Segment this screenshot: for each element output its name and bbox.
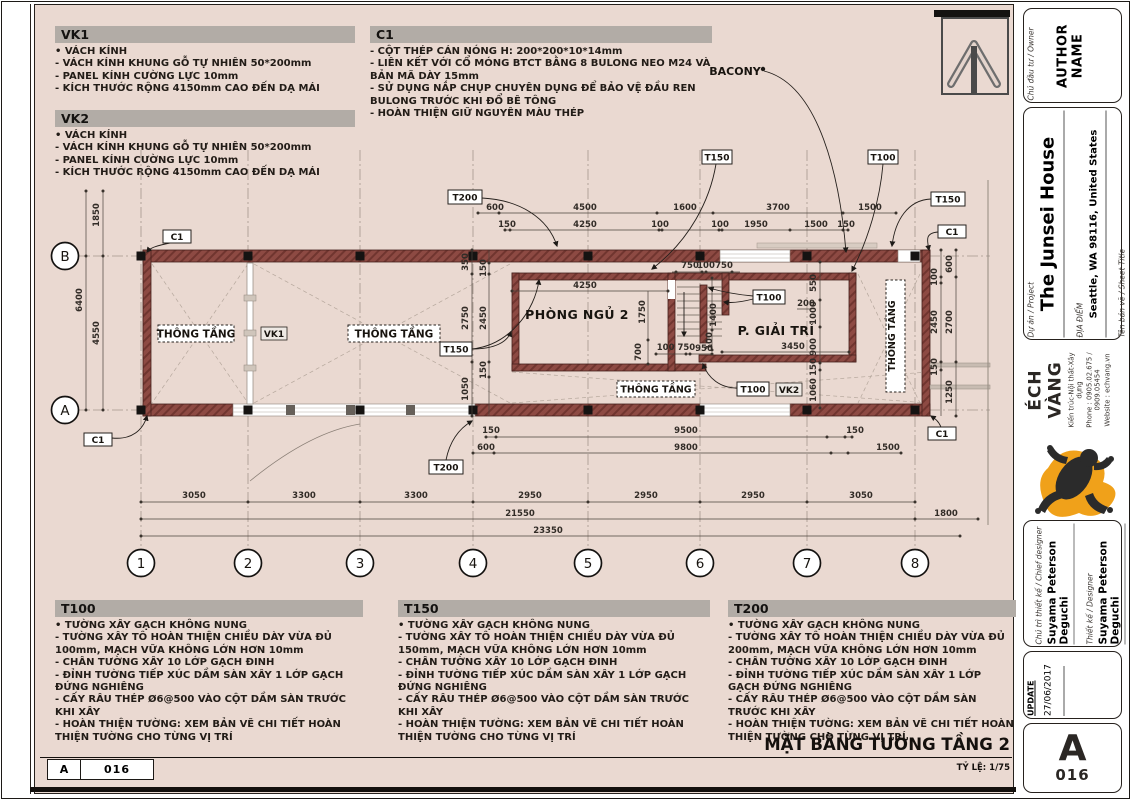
tag-vk1: VK1 bbox=[264, 330, 284, 340]
tag-vk2: VK2 bbox=[779, 386, 799, 396]
dim-label: 100 bbox=[705, 332, 715, 350]
dim-label: 6400 bbox=[75, 288, 85, 312]
room-label-bedroom2: PHÒNG NGỦ 2 bbox=[525, 306, 629, 322]
dim-label: 4250 bbox=[573, 281, 597, 291]
dim-label: 750 bbox=[715, 261, 733, 271]
dim-label: 21550 bbox=[505, 509, 535, 519]
dim-label: 3050 bbox=[182, 491, 206, 501]
sheet-rev-big: A bbox=[1059, 732, 1087, 766]
dim-label: 600 bbox=[477, 443, 495, 453]
dim-label: 3300 bbox=[292, 491, 316, 501]
tag-t150: T150 bbox=[444, 346, 469, 356]
dim-label: 1500 bbox=[858, 203, 882, 213]
dim-label: 2750 bbox=[461, 306, 471, 330]
frog-logo-icon bbox=[1030, 434, 1116, 518]
dim-label: 23350 bbox=[533, 526, 563, 536]
balcony-label: BACONY bbox=[709, 65, 762, 78]
note-t150: T150 • TƯỜNG XÂY GẠCH KHÔNG NUNG - TƯỜNG… bbox=[398, 600, 710, 744]
dim-label: 2450 bbox=[479, 306, 489, 330]
dim-label: 150 bbox=[846, 426, 864, 436]
bottom-black-bar bbox=[30, 787, 1016, 792]
tag-t150: T150 bbox=[936, 196, 961, 206]
dim-label: 100 bbox=[651, 220, 669, 230]
project-name: The Junsei House bbox=[1037, 110, 1058, 337]
footer-rule bbox=[40, 757, 1012, 758]
dim-label: 1000 bbox=[809, 301, 819, 325]
dim-label: 2950 bbox=[741, 491, 765, 501]
firm-block: ÉCH VÀNG Kiến trúc-Nội thất-Xây dựng Pho… bbox=[1023, 344, 1122, 436]
balcony-leader-dot bbox=[761, 67, 765, 71]
note-line: - TƯỜNG XÂY TÔ HOÀN THIỆN CHIỀU DÀY VỪA … bbox=[398, 632, 710, 657]
void-label: THÔNG TẦNG bbox=[157, 327, 236, 341]
note-t200: T200 • TƯỜNG XÂY GẠCH KHÔNG NUNG - TƯỜNG… bbox=[728, 600, 1016, 744]
dim-label: 150 bbox=[482, 426, 500, 436]
sheet-ref-rev: A bbox=[48, 760, 81, 779]
firm-subtitle: Kiến trúc-Nội thất-Xây dựng bbox=[1067, 346, 1083, 434]
note-t150-title: T150 bbox=[398, 600, 710, 617]
sheet-number-big: 016 bbox=[1055, 766, 1089, 784]
chief-designer-label: Chủ trì thiết kế / Chief designer bbox=[1034, 526, 1043, 644]
scale-label: TỶ LỆ: 1/75 bbox=[540, 763, 1010, 773]
note-line: - CHÂN TƯỜNG XÂY 10 LỚP GẠCH ĐINH bbox=[55, 657, 363, 669]
dim-label: 2450 bbox=[930, 310, 940, 334]
dim-label: 4250 bbox=[573, 220, 597, 230]
dim-label: 9800 bbox=[674, 443, 698, 453]
dim-label: 550 bbox=[809, 274, 819, 292]
owner-name: AUTHOR NAME bbox=[1055, 11, 1085, 100]
tag-t200: T200 bbox=[453, 194, 478, 204]
grid-label: 5 bbox=[584, 556, 593, 572]
dim-label: 150 bbox=[837, 220, 855, 230]
update-box: UPDATE 27/06/2017 bbox=[1023, 651, 1122, 719]
note-t100-title: T100 bbox=[55, 600, 363, 617]
dim-label: 100 750 bbox=[657, 343, 696, 353]
tag-t100: T100 bbox=[757, 294, 782, 304]
dim-label: 4550 bbox=[92, 321, 102, 345]
door-swing-arc bbox=[250, 424, 360, 481]
dim-label: 2950 bbox=[518, 491, 542, 501]
dim-label: 1500 bbox=[876, 443, 900, 453]
chief-designer-name: Suyama Peterson Deguchi bbox=[1046, 523, 1070, 644]
project-box: Dự án / Project The Junsei House ĐỊA ĐIỂ… bbox=[1023, 107, 1122, 340]
dim-label: 1850 bbox=[92, 203, 102, 227]
note-line: - CHÂN TƯỜNG XÂY 10 LỚP GẠCH ĐINH bbox=[398, 657, 710, 669]
tag-t100: T100 bbox=[871, 154, 896, 164]
dim-label: 9500 bbox=[674, 426, 698, 436]
dim-label: 1500 bbox=[804, 220, 828, 230]
dim-label: 3050 bbox=[849, 491, 873, 501]
location-value: Seattle, WA 98116, United States bbox=[1088, 110, 1099, 337]
owner-label: Chủ đầu tư / Owner bbox=[1026, 11, 1035, 100]
drawing-sheet: { "notes": { "vk1": {"title":"VK1","line… bbox=[0, 0, 1131, 800]
drawing-title: MẶT BẰNG TƯỜNG TẦNG 2 bbox=[540, 735, 1010, 754]
dim-label: 100 bbox=[697, 261, 715, 271]
update-date: 27/06/2017 bbox=[1043, 654, 1053, 716]
note-line: - ĐỈNH TƯỜNG TIẾP XÚC DẦM SÀN XÂY 1 LỚP … bbox=[55, 670, 363, 695]
void-label: THÔNG TẦNG bbox=[355, 327, 434, 341]
dim-label: 1400 bbox=[709, 303, 719, 327]
update-rule bbox=[1063, 666, 1064, 716]
designer-name: Suyama Peterson Deguchi bbox=[1097, 523, 1121, 644]
note-line: - CẤY RÂU THÉP Ø6@500 VÀO CỘT DẦM SÀN TR… bbox=[398, 694, 710, 719]
tag-c1: C1 bbox=[936, 430, 949, 440]
dim-label: 150 bbox=[479, 361, 489, 379]
note-line: - HOÀN THIỆN TƯỜNG: XEM BẢN VẼ CHI TIẾT … bbox=[55, 719, 363, 744]
dim-label: 2700 bbox=[945, 310, 955, 334]
dim-label: 150 bbox=[479, 259, 489, 277]
firm-phone: Phone : 0905.02.675 / 0909.05454 bbox=[1085, 346, 1101, 434]
note-line: • TƯỜNG XÂY GẠCH KHÔNG NUNG bbox=[728, 620, 1016, 632]
dim-label: 350 bbox=[461, 253, 471, 271]
room-label-entertainment: P. GIẢI TRÍ bbox=[738, 322, 815, 338]
dim-label: 100 bbox=[930, 268, 940, 286]
grid-label: 1 bbox=[137, 556, 146, 572]
note-line: - TƯỜNG XÂY TÔ HOÀN THIỆN CHIỀU DÀY VỪA … bbox=[728, 632, 1016, 657]
grid-label: 4 bbox=[469, 556, 478, 572]
note-line: - CẤY RÂU THÉP Ø6@500 VÀO CỘT DẦM SÀN TR… bbox=[55, 694, 363, 719]
sheet-ref-box: A 016 bbox=[47, 759, 154, 780]
tag-c1: C1 bbox=[92, 436, 105, 446]
sheet-ref-number: 016 bbox=[81, 760, 153, 779]
dim-label: 100 bbox=[711, 220, 729, 230]
dim-label: 150 bbox=[930, 358, 940, 376]
note-line: - CHÂN TƯỜNG XÂY 10 LỚP GẠCH ĐINH bbox=[728, 657, 1016, 669]
dim-label: 1750 bbox=[638, 300, 648, 324]
floor-plan: 600 4500 1600 3700 1500 150 4250 100 100… bbox=[30, 10, 1020, 600]
note-line: - ĐỈNH TƯỜNG TIẾP XÚC DẦM SÀN XÂY 1 LỚP … bbox=[728, 670, 1016, 695]
void-label: THÔNG TẦNG bbox=[620, 383, 691, 396]
dim-label: 900 bbox=[809, 338, 819, 356]
north-arrow-icon bbox=[934, 10, 1010, 94]
tag-t150: T150 bbox=[705, 154, 730, 164]
owner-box: Chủ đầu tư / Owner AUTHOR NAME bbox=[1023, 8, 1122, 103]
grid-label: B bbox=[60, 249, 69, 265]
note-line: • TƯỜNG XÂY GẠCH KHÔNG NUNG bbox=[398, 620, 710, 632]
dim-label: 150 bbox=[498, 220, 516, 230]
dim-label: 3700 bbox=[766, 203, 790, 213]
tag-c1: C1 bbox=[946, 228, 959, 238]
note-line: - TƯỜNG XÂY TÔ HOÀN THIỆN CHIỀU DÀY VỪA … bbox=[55, 632, 363, 657]
dim-label: 1250 bbox=[945, 380, 955, 404]
dim-label: 1950 bbox=[744, 220, 768, 230]
sheet-title-label: Tên bản vẽ / Sheet Title bbox=[1117, 248, 1126, 337]
dim-label: 700 bbox=[634, 343, 644, 361]
dim-label: 4500 bbox=[573, 203, 597, 213]
dim-label: 1600 bbox=[673, 203, 697, 213]
grid-label: A bbox=[60, 403, 70, 419]
grid-label: 2 bbox=[244, 556, 253, 572]
grid-label: 7 bbox=[803, 556, 812, 572]
grid-label: 8 bbox=[911, 556, 920, 572]
dim-label: 150 bbox=[809, 358, 819, 376]
firm-website: Website : echvang.vn bbox=[1103, 346, 1111, 434]
dim-label: 600 bbox=[486, 203, 504, 213]
sheet-number-box: A 016 bbox=[1023, 723, 1122, 793]
tag-t200: T200 bbox=[434, 464, 459, 474]
dim-label: 1060 bbox=[809, 378, 819, 402]
project-label: Dự án / Project bbox=[1026, 110, 1035, 337]
location-label: ĐỊA ĐIỂM bbox=[1075, 302, 1084, 337]
title-block: Chủ đầu tư / Owner AUTHOR NAME Dự án / P… bbox=[1020, 4, 1128, 794]
dim-label: 3450 bbox=[781, 342, 805, 352]
note-t100: T100 • TƯỜNG XÂY GẠCH KHÔNG NUNG - TƯỜNG… bbox=[55, 600, 363, 744]
dim-label: 1800 bbox=[934, 509, 958, 519]
grid-label: 3 bbox=[356, 556, 365, 572]
dim-label: 1050 bbox=[461, 377, 471, 401]
note-t200-title: T200 bbox=[728, 600, 1016, 617]
team-box: Chủ trì thiết kế / Chief designer Suyama… bbox=[1023, 520, 1122, 647]
tag-t100: T100 bbox=[741, 386, 766, 396]
firm-name: ÉCH VÀNG bbox=[1025, 346, 1065, 434]
tag-c1: C1 bbox=[171, 233, 184, 243]
void-label: THÔNG TẦNG bbox=[885, 300, 898, 371]
dim-label: 2950 bbox=[634, 491, 658, 501]
note-line: • TƯỜNG XÂY GẠCH KHÔNG NUNG bbox=[55, 620, 363, 632]
note-line: - ĐỈNH TƯỜNG TIẾP XÚC DẦM SÀN XÂY 1 LỚP … bbox=[398, 670, 710, 695]
dim-label: 3300 bbox=[404, 491, 428, 501]
update-label: UPDATE bbox=[1026, 654, 1035, 716]
designer-label: Thiết kế / Designer bbox=[1085, 573, 1094, 644]
grid-label: 6 bbox=[696, 556, 705, 572]
dim-label: 600 bbox=[945, 255, 955, 273]
note-line: - CẤY RÂU THÉP Ø6@500 VÀO CỘT DẦM SÀN TR… bbox=[728, 694, 1016, 719]
